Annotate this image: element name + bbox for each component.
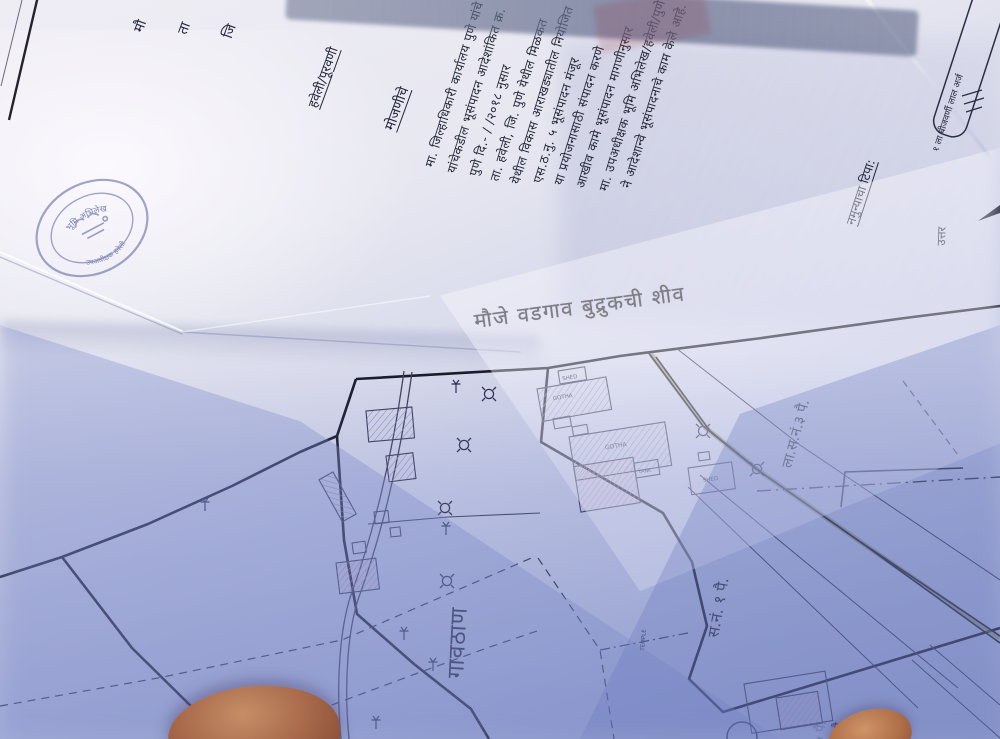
gaothan-label: गावठाण <box>438 606 474 679</box>
buildings-east: SHED GOTHA GOTHA TANK SHED <box>537 367 735 512</box>
building-label-shed-right: SHED <box>703 476 719 484</box>
stamp-arc-bottom-text: उपअधीक्षक हवेली <box>82 238 130 272</box>
survey-lines <box>841 468 963 507</box>
buildings-west <box>319 407 416 594</box>
temple-circle-symbol <box>727 722 757 739</box>
building-label-tank: TANK <box>637 467 653 475</box>
official-seal-stamp: भूमि अभिलेख उपअधीक्षक हवेली <box>14 166 174 296</box>
sheet-border-lines <box>1 0 38 120</box>
photo-of-survey-map-document: SHED GOTHA GOTHA TANK SHED <box>0 0 1000 739</box>
tree-symbols <box>201 380 461 729</box>
svg-text:उपअधीक्षक हवेली: उपअधीक्षक हवेली <box>82 238 130 272</box>
north-arrow-icon <box>978 205 1000 221</box>
highway-road <box>648 348 1000 738</box>
dashed-plot-lines <box>0 381 1000 739</box>
north-label: उत्तर <box>934 227 950 246</box>
village-boundary-lines <box>0 306 1000 739</box>
